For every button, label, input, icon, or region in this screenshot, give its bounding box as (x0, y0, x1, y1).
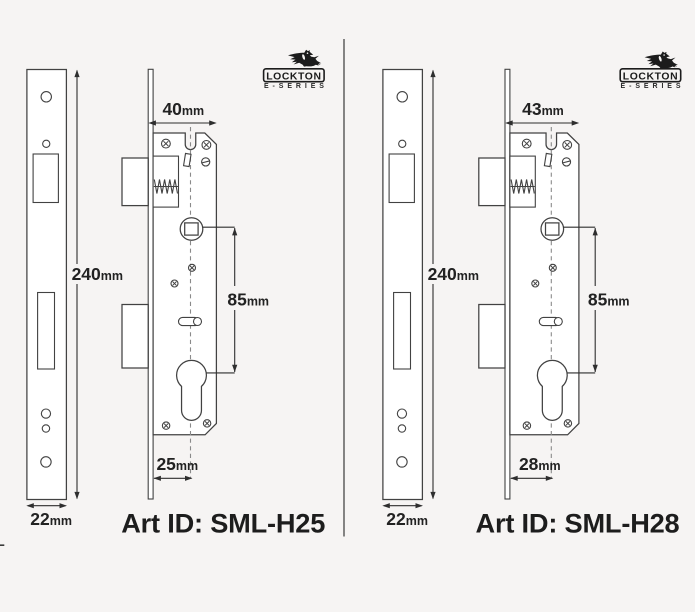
svg-text:E-SERIES: E-SERIES (264, 83, 328, 90)
svg-text:Art ID: SML-H25: Art ID: SML-H25 (121, 508, 325, 539)
svg-text:LOCKTON: LOCKTON (623, 71, 678, 82)
svg-text:LOCKTON: LOCKTON (266, 71, 321, 82)
svg-text:Art ID: SML-H28: Art ID: SML-H28 (476, 508, 680, 539)
svg-text:E-SERIES: E-SERIES (621, 83, 685, 90)
